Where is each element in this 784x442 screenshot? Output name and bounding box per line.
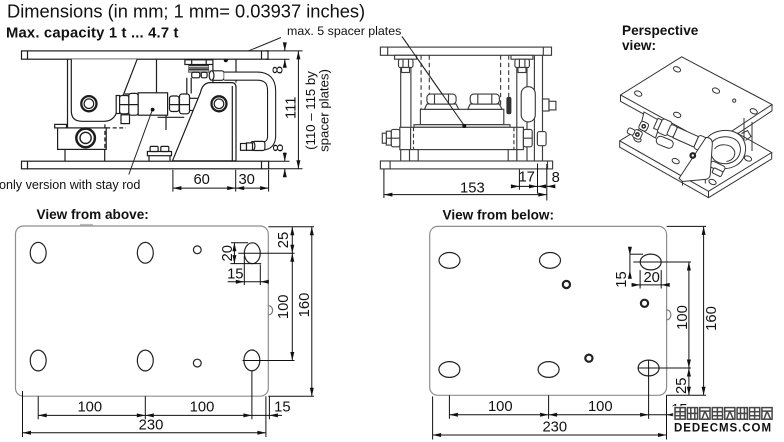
svg-text:View from below:: View from below: [443,208,555,223]
svg-text:100: 100 [588,399,613,415]
svg-text:100: 100 [190,399,215,415]
svg-text:17: 17 [518,170,534,186]
svg-text:spacer plates): spacer plates) [316,69,331,152]
svg-text:60: 60 [193,172,209,188]
svg-text:View from above:: View from above: [37,207,149,222]
svg-text:30: 30 [238,172,254,188]
svg-text:8: 8 [552,170,560,186]
svg-text:25: 25 [674,377,690,393]
svg-text:DEDECMS.COM: DEDECMS.COM [674,423,772,435]
svg-text:100: 100 [77,399,102,415]
svg-text:Dimensions (in mm; 1 mm= 0.039: Dimensions (in mm; 1 mm= 0.03937 inches) [7,1,365,22]
svg-text:153: 153 [460,180,485,196]
svg-text:25: 25 [276,232,292,248]
svg-text:20: 20 [220,245,236,261]
svg-text:15: 15 [274,399,290,415]
svg-text:view:: view: [622,38,656,53]
svg-text:Max. capacity 1 t ... 4.7 t: Max. capacity 1 t ... 4.7 t [6,26,179,42]
svg-text:111: 111 [284,96,300,119]
svg-text:230: 230 [139,417,164,433]
svg-text:only version with stay rod: only version with stay rod [0,178,140,192]
svg-text:100: 100 [488,399,513,415]
svg-text:8: 8 [271,66,287,74]
svg-text:100: 100 [675,305,691,330]
svg-text:160: 160 [704,306,720,331]
svg-text:max. 5 spacer plates: max. 5 spacer plates [287,24,401,38]
svg-text:Perspective: Perspective [622,23,699,38]
svg-text:160: 160 [297,293,313,318]
svg-text:15: 15 [227,267,243,283]
svg-text:15: 15 [614,271,630,287]
svg-text:20: 20 [643,270,659,286]
svg-text:230: 230 [542,419,567,435]
svg-text:100: 100 [276,294,292,319]
svg-text:8: 8 [271,144,287,152]
